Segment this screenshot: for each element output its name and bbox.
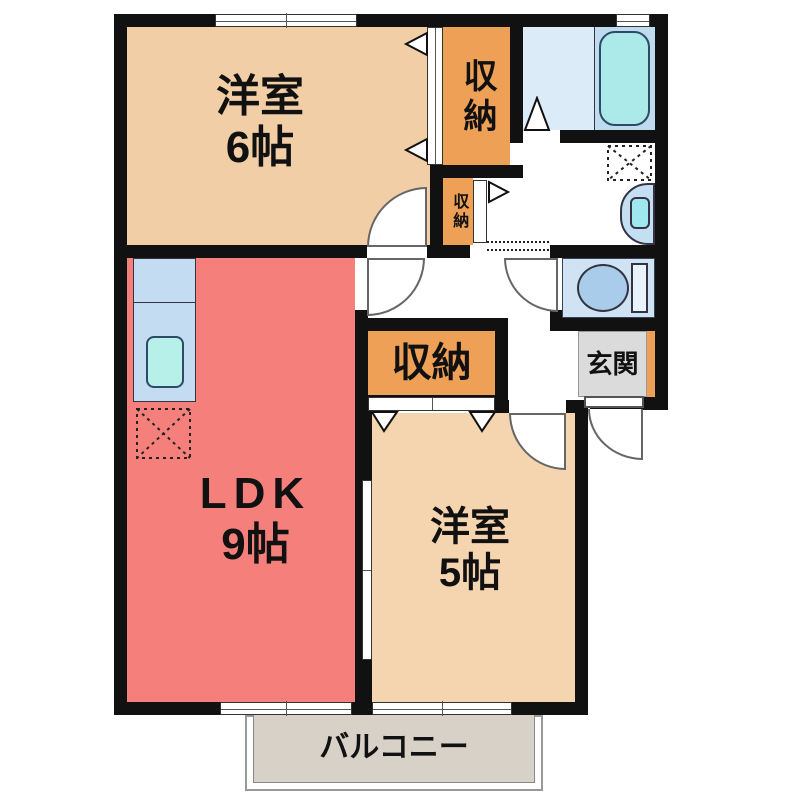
wall-west6-right [430,165,443,258]
wall-west5-right [575,400,588,715]
front-door-leaf [584,396,644,408]
closet-top-name: 収納 [457,58,496,138]
window-center-tick [442,701,443,716]
window-center-tick [286,13,287,28]
folding-door-marker-icon [523,96,551,132]
wall-toilet-top [550,245,668,258]
dotted-partition-line [487,249,549,251]
window-pane-line [617,21,649,22]
sliding-door-closet-top [427,27,443,165]
window-bathroom-top [616,14,650,27]
closet-door-marker-icon [370,411,399,433]
western6-size: 6帖 [226,123,294,174]
wall-top [114,14,668,27]
closet-main-floor: 収納 [368,331,495,395]
kitchen-sink [146,336,184,388]
wall-right [655,14,668,410]
ldk-name: LDK [200,469,311,520]
sliding-partition-ldk-west5 [362,480,372,660]
ldk-size: 9帖 [221,520,289,571]
door-swing-toilet [504,258,558,312]
bathtub [599,31,650,126]
entrance-step-strip [647,331,655,397]
slide-marker-left-icon [403,31,429,57]
label-entrance: 玄関 [578,348,647,382]
sliding-door-closet-main [368,397,495,411]
wall-closettop-bottom [430,165,523,178]
label-closet-small: 収納 [443,184,473,240]
kitchen-counter [133,258,196,303]
wall-bath-left [510,14,523,143]
entrance-name: 玄関 [586,350,638,380]
washbasin-bowl [630,197,650,229]
closet-door-marker-icon [468,411,497,433]
western5-name: 洋室 [430,504,510,550]
window-west6-top [215,14,357,27]
slide-marker-right-icon [487,180,511,204]
sliding-door-track [435,28,436,164]
label-western6: 洋室 6帖 [150,55,370,190]
floor-plan: バルコニー 収納 [0,0,800,800]
label-western5: 洋室 5帖 [385,485,555,615]
toilet-tank [631,263,648,313]
toilet-bowl [577,264,629,312]
label-closet-top: 収納 [443,42,510,154]
wall-left [114,14,127,715]
sliding-door-track [363,570,371,571]
closet-main-label: 収納 [392,340,472,386]
western6-name: 洋室 [216,72,304,123]
balcony-label: バルコニー [319,731,468,766]
dotted-partition-line [487,241,549,243]
door-swing-ldk [367,258,425,316]
washing-machine-space-icon [606,144,653,182]
window-ldk-balcony [220,702,352,715]
balcony-floor: バルコニー [253,715,535,783]
closet-small-name: 収納 [449,193,467,231]
slide-marker-left-icon [403,137,429,163]
label-ldk: LDK 9帖 [148,452,363,587]
window-center-tick [286,701,287,716]
window-west5-balcony [372,702,512,715]
door-swing-front [588,409,643,460]
sliding-door-track [432,398,433,410]
western5-size: 5帖 [439,550,501,596]
sliding-door-closet-small [473,180,487,243]
wall-toilet-bottom [550,318,668,331]
